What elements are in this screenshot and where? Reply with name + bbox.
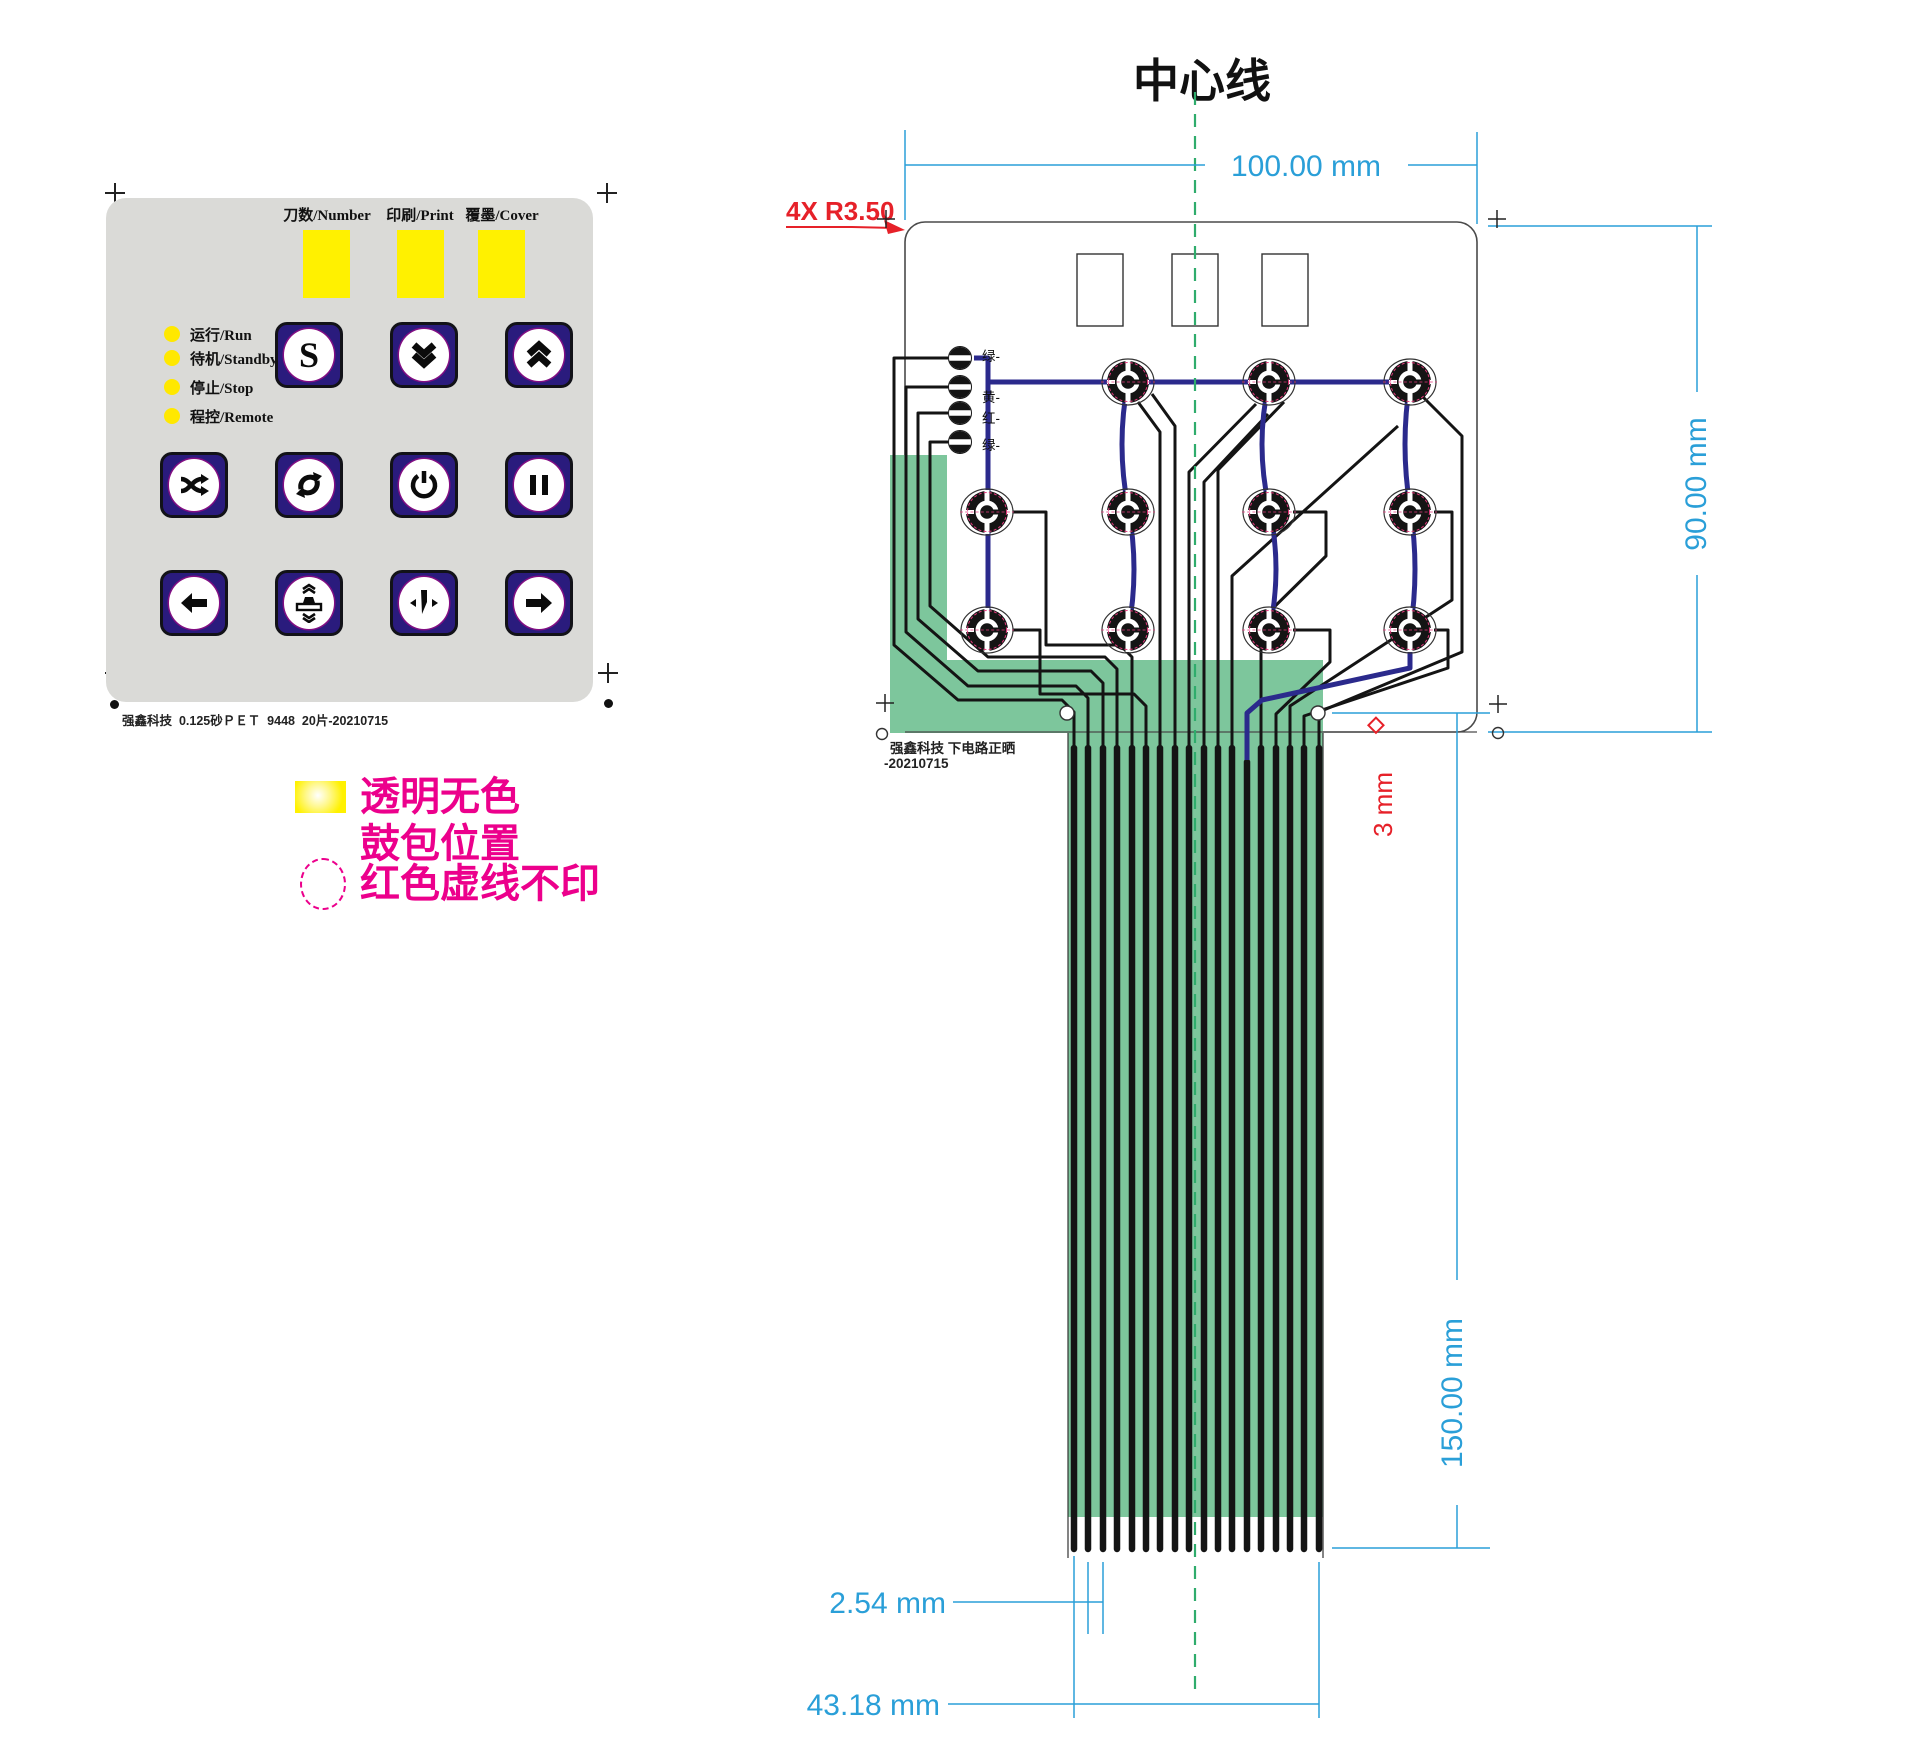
window-label-cover: 覆墨/Cover — [442, 204, 562, 225]
legend-dashed-circle — [300, 858, 346, 910]
status-led-run: 运行/Run — [164, 325, 252, 343]
corner-radius-leader — [786, 227, 894, 228]
pause-icon — [526, 472, 552, 498]
status-led-standby: 待机/Standby — [164, 349, 278, 367]
dim-tail-width-label: 43.18 mm — [807, 1689, 940, 1722]
press-platen-icon — [292, 583, 326, 623]
button-page-down — [390, 322, 458, 388]
overlay-reg-cross-tr — [597, 183, 617, 203]
overlay-reg-cross-br — [598, 663, 618, 683]
hole-diameter-symbol: ◇ — [1367, 711, 1386, 736]
blade-icon — [408, 587, 440, 619]
power-icon — [408, 469, 440, 501]
overlay-spec-footer: 强鑫科技 0.125砂ＰＥＴ 9448 20片-20210715 — [122, 710, 388, 729]
circuit-reg-circle-right — [1493, 728, 1504, 739]
display-window-cover — [478, 230, 525, 298]
button-shuffle — [160, 452, 228, 518]
stop-led-icon — [164, 379, 180, 395]
overlay-reg-dot-bl — [110, 700, 119, 709]
status-led-stop: 停止/Stop — [164, 378, 253, 396]
run-led-label: 运行/Run — [190, 324, 252, 345]
legend-yellow-swatch — [295, 781, 346, 813]
led-label-2: 黄- — [982, 390, 1000, 405]
legend-line2: 鼓包位置 — [360, 824, 520, 864]
remote-led-label: 程控/Remote — [190, 406, 273, 427]
button-pause — [505, 452, 573, 518]
arrow-right-icon — [524, 589, 554, 617]
dim-tail-length-label: 150.00 mm — [1436, 1318, 1469, 1468]
circuit-note-line2: -20210715 — [884, 756, 949, 771]
shuffle-icon — [178, 470, 210, 500]
led-label-3: 红- — [982, 411, 1000, 426]
led-pad-green2 — [948, 431, 972, 454]
stop-led-label: 停止/Stop — [190, 377, 253, 398]
led-label-4: 绿- — [982, 438, 1000, 453]
button-arrow-right — [505, 570, 573, 636]
led-pad-red — [948, 402, 972, 425]
dim-width-label: 100.00 mm — [1231, 150, 1381, 183]
membrane-overlay-panel: 刀数/Number 印刷/Print 覆墨/Cover 运行/Run 待机/St… — [106, 198, 593, 702]
button-page-up — [505, 322, 573, 388]
button-press-platen — [275, 570, 343, 636]
s-icon: S — [299, 337, 319, 373]
led-pad-yellow — [948, 376, 972, 399]
corner-radius-arrowhead — [884, 220, 905, 234]
button-power — [390, 452, 458, 518]
display-window-print — [397, 230, 444, 298]
run-led-icon — [164, 326, 180, 342]
led-pad-green1 — [948, 347, 972, 370]
display-window-number — [303, 230, 350, 298]
double-chevron-up-icon — [524, 340, 554, 370]
arrow-left-icon — [179, 589, 209, 617]
legend-line3: 红色虚线不印 — [360, 864, 600, 904]
double-chevron-down-icon — [409, 340, 439, 370]
overlay-reg-dot-br — [604, 699, 613, 708]
remote-led-icon — [164, 408, 180, 424]
circuit-display-windows — [1077, 254, 1308, 326]
center-line-title: 中心线 — [1133, 55, 1271, 107]
corner-radius-label: 4X R3.50 — [786, 196, 894, 226]
dim-height-label: 90.00 mm — [1680, 417, 1713, 550]
hole-diameter-label: 3 mm — [1368, 772, 1398, 837]
circuit-reg-circle-left — [877, 729, 888, 740]
cycle-icon — [293, 469, 325, 501]
led-label-1: 绿- — [982, 349, 1000, 364]
button-arrow-left — [160, 570, 228, 636]
button-start: S — [275, 322, 343, 388]
button-blade — [390, 570, 458, 636]
standby-led-icon — [164, 350, 180, 366]
button-cycle — [275, 452, 343, 518]
legend-line1: 透明无色 — [360, 777, 520, 817]
status-led-remote: 程控/Remote — [164, 407, 273, 425]
dim-pitch-label: 2.54 mm — [829, 1587, 946, 1620]
standby-led-label: 待机/Standby — [190, 348, 278, 369]
circuit-note-line1: 强鑫科技 下电路正晒 — [890, 740, 1016, 756]
